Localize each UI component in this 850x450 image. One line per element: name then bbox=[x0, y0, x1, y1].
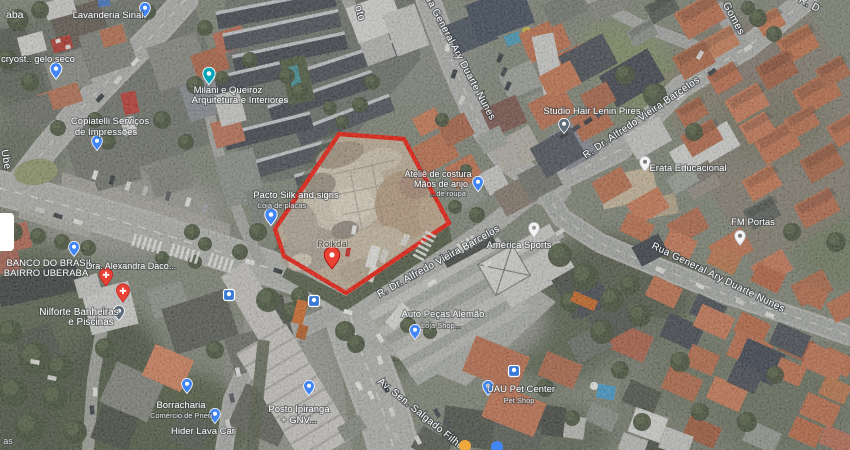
svg-text:Loja Shop...: Loja Shop... bbox=[421, 321, 461, 330]
svg-text:Studio Hair Lenin Pires: Studio Hair Lenin Pires bbox=[543, 106, 640, 117]
svg-text:+ GNV...: + GNV... bbox=[281, 415, 317, 426]
svg-text:Posto Ipiranga: Posto Ipiranga bbox=[268, 404, 330, 415]
svg-text:Loja de placas: Loja de placas bbox=[258, 201, 307, 210]
svg-text:Ube: Ube bbox=[0, 149, 14, 171]
svg-text:FM Portas: FM Portas bbox=[731, 217, 775, 228]
svg-text:Mãos de anjo: Mãos de anjo bbox=[414, 179, 468, 189]
svg-text:Roikdal: Roikdal bbox=[317, 239, 349, 250]
svg-text:Comércio de Pneu: Comércio de Pneu bbox=[150, 411, 212, 420]
svg-text:as: as bbox=[3, 436, 13, 446]
svg-text:Pacto Silk and signs: Pacto Silk and signs bbox=[253, 190, 339, 201]
svg-text:Borracharia: Borracharia bbox=[156, 400, 206, 411]
svg-text:América Sports: América Sports bbox=[487, 240, 552, 251]
svg-text:de Impressões: de Impressões bbox=[75, 127, 138, 138]
svg-text:Copiatelli Serviços: Copiatelli Serviços bbox=[71, 116, 149, 127]
svg-text:BAIRRO UBERABA: BAIRRO UBERABA bbox=[4, 268, 89, 279]
svg-text:Hider Lava Car: Hider Lava Car bbox=[171, 426, 235, 437]
svg-text:...de roupa: ...de roupa bbox=[430, 189, 467, 198]
svg-text:UAU Pet Center: UAU Pet Center bbox=[487, 384, 555, 395]
svg-text:Erata Educacional: Erata Educacional bbox=[649, 163, 726, 174]
svg-text:aba: aba bbox=[6, 9, 24, 21]
svg-text:e Piscinas: e Piscinas bbox=[68, 317, 114, 328]
svg-text:Auto Peças Alemão: Auto Peças Alemão bbox=[402, 309, 485, 320]
svg-text:Ateliê de costura: Ateliê de costura bbox=[404, 169, 471, 179]
svg-text:Lavanderia Sinai: Lavanderia Sinai bbox=[73, 10, 144, 21]
svg-text:Arquitetura e Interiores: Arquitetura e Interiores bbox=[192, 95, 289, 106]
svg-text:cryost.. gelo seco: cryost.. gelo seco bbox=[1, 54, 75, 65]
svg-text:Dra. Alexandra Daco...: Dra. Alexandra Daco... bbox=[86, 261, 177, 271]
svg-text:Pet Shop: Pet Shop bbox=[504, 396, 535, 405]
